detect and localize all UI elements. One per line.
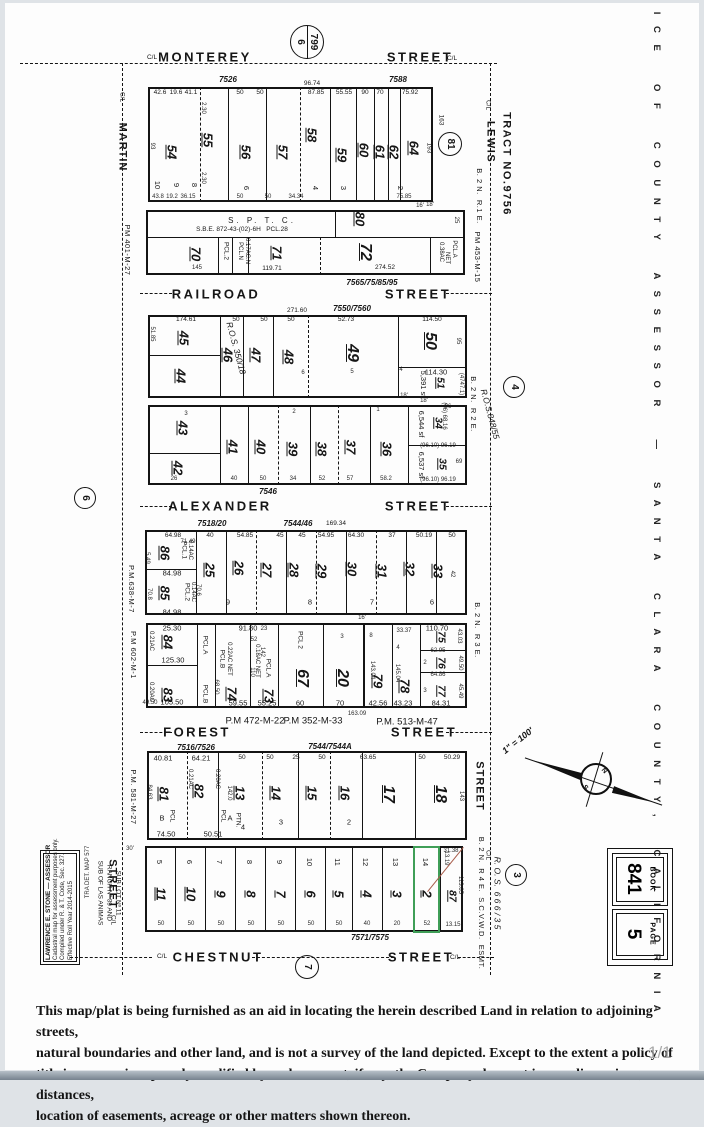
map-line — [228, 87, 229, 202]
assessor-stamp: LAWRENCE E. STONE — ASSESSOR Cadastral m… — [45, 854, 75, 960]
map-label: P.M 352-M-33 — [284, 716, 343, 726]
map-line — [398, 315, 399, 398]
map-label: 7565/75/85/95 — [346, 279, 397, 287]
map-label: 16' — [416, 203, 424, 209]
map-label: PM 453-M-15 — [473, 232, 481, 283]
map-line — [376, 530, 377, 615]
map-line — [338, 405, 339, 485]
map-line — [140, 732, 172, 733]
map-label: 7544/7544A — [308, 743, 352, 751]
map-label: C/L — [450, 955, 460, 962]
circled-reference-number — [290, 25, 324, 59]
book-label: BOOK — [649, 867, 656, 892]
map-line — [346, 530, 347, 615]
map-line — [325, 846, 326, 932]
disclaimer-line: location of easements, acreage or other … — [36, 1106, 681, 1127]
map-line — [408, 445, 467, 446]
map-label: 7546 — [259, 488, 277, 496]
map-line — [196, 530, 197, 615]
disclaimer-text: This map/plat is being furnished as an a… — [36, 1001, 681, 1127]
map-label: P.M. 513-M-47 — [376, 717, 438, 727]
map-line — [148, 453, 220, 454]
map-line — [388, 87, 389, 202]
map-line — [200, 87, 201, 202]
map-line — [382, 846, 383, 932]
map-label: R. O. S. 6 6 6 / 3 5 — [493, 857, 502, 930]
block-outline — [398, 367, 467, 398]
map-label: 271.60 — [287, 308, 307, 315]
map-line — [374, 87, 375, 202]
map-line — [370, 405, 371, 485]
map-label: MONTEREY — [158, 51, 252, 64]
plat-map: MONTEREYSTREETC/LC/LRAILROADSTREETALEXAN… — [0, 0, 704, 1080]
map-label: 16' — [358, 615, 366, 621]
map-line — [220, 315, 221, 398]
map-line — [146, 665, 197, 666]
map-line — [122, 63, 123, 975]
map-line — [295, 846, 296, 932]
map-line — [175, 846, 176, 932]
map-label: C/L — [118, 92, 125, 102]
map-line — [146, 237, 465, 238]
map-line — [420, 650, 467, 651]
map-label: 7526 — [219, 76, 237, 84]
map-line — [406, 530, 407, 615]
map-line — [436, 530, 437, 615]
map-line — [415, 751, 416, 840]
map-label: P.M. 581-M-27 — [129, 769, 137, 824]
map-line — [248, 237, 249, 275]
page-number: 5 — [622, 929, 644, 940]
map-line — [250, 623, 251, 708]
map-line — [300, 87, 301, 202]
map-line — [256, 530, 257, 615]
map-line — [252, 957, 394, 958]
map-label: B. 2 N. R 2 E. — [469, 376, 477, 431]
map-line — [148, 355, 220, 356]
map-label: 1" = 100' — [501, 726, 535, 756]
map-label: SUB OF LAS ANIMAS — [96, 861, 103, 926]
stamp-line: Effective Roll Year 2014-2015 — [68, 854, 76, 960]
map-line — [226, 530, 227, 615]
map-line — [205, 846, 206, 932]
block-outline — [147, 751, 467, 840]
map-line — [298, 751, 299, 840]
block-outline — [363, 623, 467, 708]
block-outline — [146, 210, 465, 275]
map-label: P.M 472-M-22 — [226, 716, 285, 726]
map-line — [243, 315, 244, 398]
map-line — [320, 237, 321, 275]
map-line — [218, 237, 219, 275]
map-line — [330, 751, 331, 840]
map-line — [265, 846, 266, 932]
map-line — [266, 87, 267, 202]
page-indicator: 1/1 — [648, 1043, 672, 1063]
map-line — [420, 672, 467, 673]
map-label: 18' — [426, 202, 434, 208]
map-line — [490, 63, 491, 975]
map-line — [335, 210, 336, 237]
viewer-bottom-bar — [0, 1071, 704, 1080]
map-line — [392, 623, 393, 708]
map-line — [286, 530, 287, 615]
map-label: STREET — [474, 761, 485, 810]
block-outline — [148, 87, 433, 202]
map-line — [356, 87, 357, 202]
block-outline — [145, 530, 467, 615]
map-label: 7571/7575 — [351, 934, 389, 942]
map-label: 7544/46 — [284, 520, 313, 528]
map-line — [262, 751, 263, 840]
map-line — [400, 87, 401, 202]
map-label: 18' — [420, 398, 428, 404]
circled-reference-number — [295, 955, 319, 979]
map-label: P.M 602-M-1 — [129, 631, 137, 679]
map-line — [235, 846, 236, 932]
map-label: ALEXANDER — [168, 500, 271, 513]
map-line — [218, 751, 219, 840]
stamp-line: LAWRENCE E. STONE — ASSESSOR — [45, 854, 53, 960]
map-label: FOREST — [163, 726, 231, 739]
map-label: RAILROAD — [172, 288, 261, 301]
map-line — [430, 237, 431, 275]
map-line — [215, 623, 216, 708]
map-line — [316, 530, 317, 615]
map-label: STREET — [385, 500, 451, 513]
map-line — [145, 569, 196, 570]
map-line — [20, 63, 497, 64]
map-label: B. 2 N. R.1 E. — [475, 168, 483, 223]
map-label: RANCH Nº 39 AND — [105, 865, 112, 921]
stamp-line: Compiled under R. & T. Code, Sec. 327. — [60, 854, 68, 960]
map-label: C/L — [157, 954, 167, 961]
map-line — [273, 315, 274, 398]
map-line — [220, 405, 221, 485]
map-label: 7550/7560 — [333, 305, 371, 313]
map-line — [278, 623, 279, 708]
map-label: 169.34 — [326, 521, 346, 528]
circled-reference-number — [438, 132, 462, 156]
map-label: 7588 — [389, 76, 407, 84]
map-line — [446, 506, 492, 507]
map-line — [197, 623, 198, 708]
map-label: STREET — [385, 288, 451, 301]
circled-reference-number — [74, 487, 96, 509]
map-line — [308, 315, 309, 398]
map-line — [248, 405, 249, 485]
highlight-outline — [413, 846, 440, 933]
map-label: TRA DET. MAP 577 — [85, 846, 91, 899]
map-label: 163 — [437, 115, 444, 126]
map-line — [323, 623, 324, 708]
map-label: STREET — [388, 951, 454, 964]
circled-reference-number — [505, 864, 527, 886]
disclaimer-line: This map/plat is being furnished as an a… — [36, 1001, 681, 1043]
map-line — [310, 405, 311, 485]
map-label: SUB LOT Nº 11 — [114, 870, 121, 915]
map-label: PM 401-M-27 — [123, 225, 131, 276]
book-number: 841 — [622, 863, 644, 895]
map-label: CHESTNUT — [173, 951, 264, 964]
map-label: 30' — [126, 846, 134, 852]
map-label: TRACT NO.9756 — [501, 112, 512, 216]
map-line — [140, 293, 172, 294]
map-line — [352, 846, 353, 932]
map-label: C/L — [447, 56, 457, 63]
map-label: C/L — [147, 55, 157, 62]
map-line — [70, 957, 152, 958]
circled-reference-number — [503, 376, 525, 398]
page-label: PAGE — [649, 922, 656, 945]
map-line — [446, 293, 492, 294]
disclaimer-line: natural boundaries and other land, and i… — [36, 1043, 681, 1064]
map-line — [420, 623, 421, 708]
map-line — [140, 506, 172, 507]
map-label: B. 2 N. R 3 E. — [473, 602, 481, 657]
map-line — [187, 751, 188, 840]
map-line — [278, 405, 279, 485]
map-line — [458, 957, 494, 958]
stamp-line: Cadastral map for assessment purposes on… — [53, 854, 61, 960]
map-label: STREET — [387, 51, 453, 64]
map-line — [446, 732, 492, 733]
map-line — [330, 87, 331, 202]
map-label: 7518/20 — [198, 520, 227, 528]
map-line — [440, 846, 441, 932]
map-line — [232, 237, 233, 275]
map-label: 163.09 — [348, 711, 366, 717]
map-line — [362, 751, 363, 840]
map-label: P.M.638-M-7 — [127, 565, 135, 613]
